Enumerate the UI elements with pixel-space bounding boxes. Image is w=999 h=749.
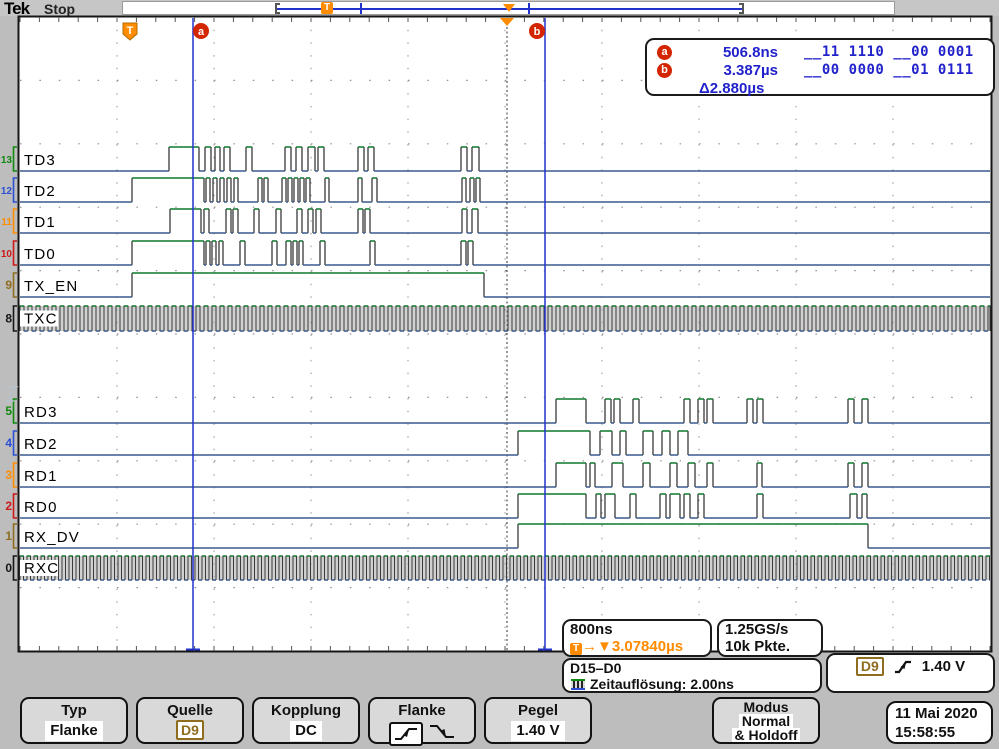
channel-bracket-d1 [14,524,18,548]
cursor-delta-time: Δ2.880µs [699,80,764,97]
menu-button-quelle[interactable]: Quelle D9 [136,697,244,744]
cursor-b-bits: __00 0000 __01 0111 [804,62,974,78]
menu-kopplung-value: DC [290,721,322,741]
arrow-icon: → [582,638,597,655]
channel-label-rx_dv: RX_DV [24,529,80,546]
menu-kopplung-title: Kopplung [254,701,358,721]
menu-quelle-title: Quelle [138,701,242,721]
channel-marker-d11: 11 [1,217,12,228]
trigger-t-icon: T [570,643,582,655]
channel-label-td0: TD0 [24,246,56,263]
cursor-b-time: 3.387µs [686,62,778,79]
trigger-flag-label: T [127,25,134,37]
channel-label-rd3: RD3 [24,404,58,421]
horizontal-scale-box: 800ns T→▼3.07840µs [562,619,712,657]
channel-bracket-d10 [14,241,18,265]
channel-marker-d4: 4 [5,436,12,450]
datetime-box: 11 Mai 2020 15:58:55 [886,701,993,744]
waveform-display: 13TD312TD211TD110TD09TX_EN8TXC5RD34RD23R… [0,0,999,660]
channel-bracket-d9 [14,273,18,297]
channel-marker-d12: 12 [1,186,13,197]
digital-bus-icon [570,678,586,691]
channel-label-rd1: RD1 [24,468,58,485]
channel-marker-d1: 1 [5,529,12,543]
rising-edge-selected-icon[interactable] [389,722,423,746]
menu-pegel-value: 1.40 V [511,721,564,741]
cursor-b-bubble-label: b [534,26,541,38]
trigger-level-value: 1.40 V [922,658,965,675]
channel-bracket-d4 [14,431,18,455]
date-value: 11 Mai 2020 [895,704,984,723]
channel-label-td1: TD1 [24,214,56,231]
channel-bracket-d3 [14,463,18,487]
acquisition-info-box: 1.25GS/s 10k Pkte. [717,619,823,657]
cursor-readout-box: a 506.8ns __11 1110 __00 0001 b 3.387µs … [645,38,995,96]
trigger-source-chip: D9 [856,657,884,676]
trigger-delay-readout: T→▼3.07840µs [570,638,704,655]
time-value: 15:58:55 [895,723,984,742]
cursor-a-bubble-label: a [198,26,205,38]
channel-label-rd0: RD0 [24,499,58,516]
channel-bracket-d11 [14,209,18,233]
channel-label-td2: TD2 [24,183,56,200]
menu-button-pegel[interactable]: Pegel 1.40 V [484,697,592,744]
rising-edge-icon [894,659,912,675]
channel-marker-d13: 13 [1,155,13,166]
menu-flanke-title: Flanke [370,701,474,721]
channel-label-td3: TD3 [24,152,56,169]
cursor-a-badge: a [657,45,672,60]
channel-label-txc: TXC [24,311,58,328]
delay-value: 3.07840µs [612,638,683,655]
cursor-b-badge: b [657,63,672,78]
menu-pegel-title: Pegel [486,701,590,721]
channel-bracket-d2 [14,494,18,518]
channel-bracket-d0 [14,556,18,580]
channel-marker-d0: 0 [5,561,12,575]
menu-button-flanke[interactable]: Flanke [368,697,476,744]
falling-edge-icon[interactable] [429,722,455,746]
channel-marker-d9: 9 [5,278,12,292]
channel-marker-d10: 10 [1,249,13,260]
channel-bracket-d8 [14,306,18,331]
trigger-readout-box: D9 1.40 V [826,653,995,693]
record-length: 10k Pkte. [725,638,815,655]
channel-marker-d2: 2 [5,499,12,513]
channel-label-rxc: RXC [24,560,59,577]
channel-bracket-d13 [14,147,18,171]
bus-time-resolution: Zeitauflösung: 2.00ns [590,676,734,692]
channel-marker-d5: 5 [5,404,12,418]
menu-modus-value2: & Holdoff [732,728,801,742]
menu-modus-title: Modus [714,700,818,714]
timebase-value: 800ns [570,621,704,638]
menu-button-kopplung[interactable]: Kopplung DC [252,697,360,744]
channel-marker-d8: 8 [5,312,12,326]
menu-button-typ[interactable]: Typ Flanke [20,697,128,744]
channel-label-rd2: RD2 [24,436,58,453]
digital-bus-box: D15–D0 Zeitauflösung: 2.00ns [562,658,822,693]
channel-bracket-d5 [14,399,18,423]
menu-button-modus[interactable]: Modus Normal & Holdoff [712,697,820,744]
cursor-a-time: 506.8ns [686,44,778,61]
menu-modus-value1: Normal [739,714,793,728]
channel-label-tx_en: TX_EN [24,278,78,295]
menu-typ-value: Flanke [45,721,103,741]
cursor-a-bits: __11 1110 __00 0001 [804,44,974,60]
channel-marker-d3: 3 [5,468,12,482]
sample-rate: 1.25GS/s [725,621,815,638]
bus-label: D15–D0 [570,660,814,676]
menu-typ-title: Typ [22,701,126,721]
clock-band-rxc [20,556,990,580]
expansion-triangle-icon: ▼ [597,638,612,655]
channel-bracket-d12 [14,178,18,202]
menu-quelle-value: D9 [176,720,204,740]
